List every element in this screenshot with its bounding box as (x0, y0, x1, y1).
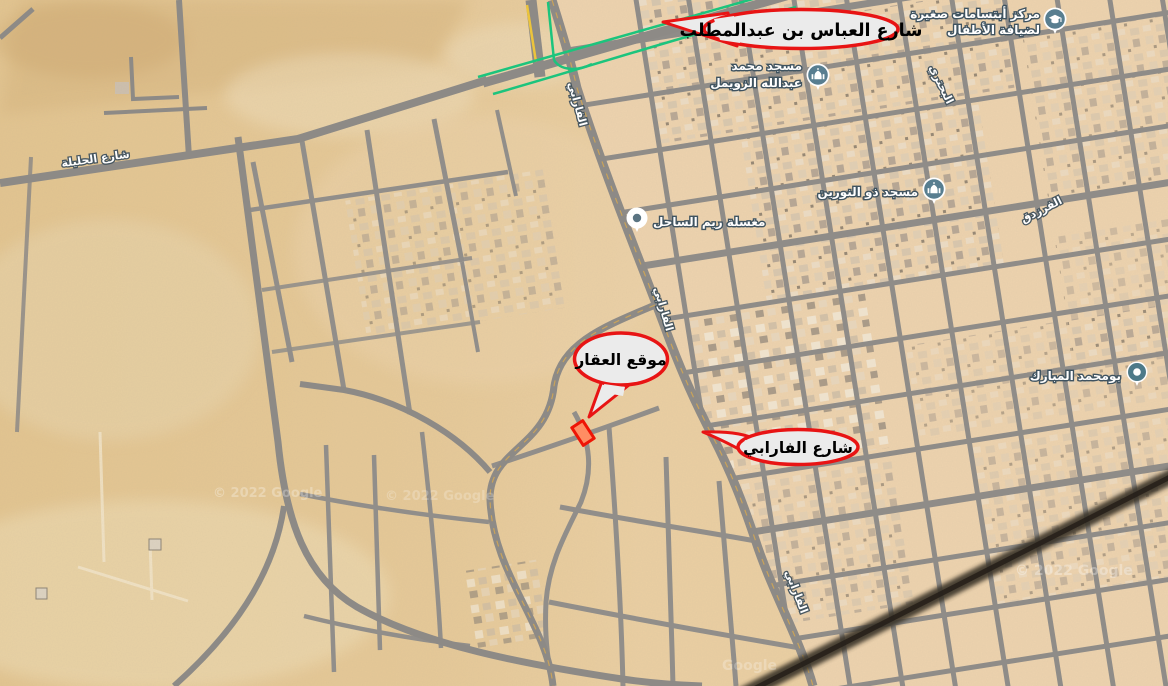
watermark-google: © 2022 Google (213, 486, 323, 501)
watermark-google: © 2022 Google (1015, 563, 1133, 579)
poi-label: مسجد ذو النورين (818, 185, 918, 200)
poi-label: مسجد محمد (732, 59, 802, 73)
poi-label: بومحمد المبارك (1030, 369, 1121, 384)
callout-abbas-text: شارع العباس بن عبدالمطلب (680, 21, 923, 41)
poi-label: لضيافة الأطفال (947, 22, 1040, 37)
poi-label: مركز أبتسامات صغيرة (910, 6, 1040, 21)
watermark-google: Google (722, 658, 777, 674)
callout-property-text: موقع العقار (574, 351, 666, 369)
callout-farabi-text: شارع الفارابي (743, 439, 853, 458)
satellite-map[interactable]: © 2022 Google © 2022 Google © 2022 Googl… (0, 0, 1168, 686)
poi-label: عبدالله الزويمل (710, 76, 802, 91)
watermark-google: © 2022 Google (385, 489, 495, 504)
poi-label: مغسلة ريم الساحل (653, 215, 765, 229)
